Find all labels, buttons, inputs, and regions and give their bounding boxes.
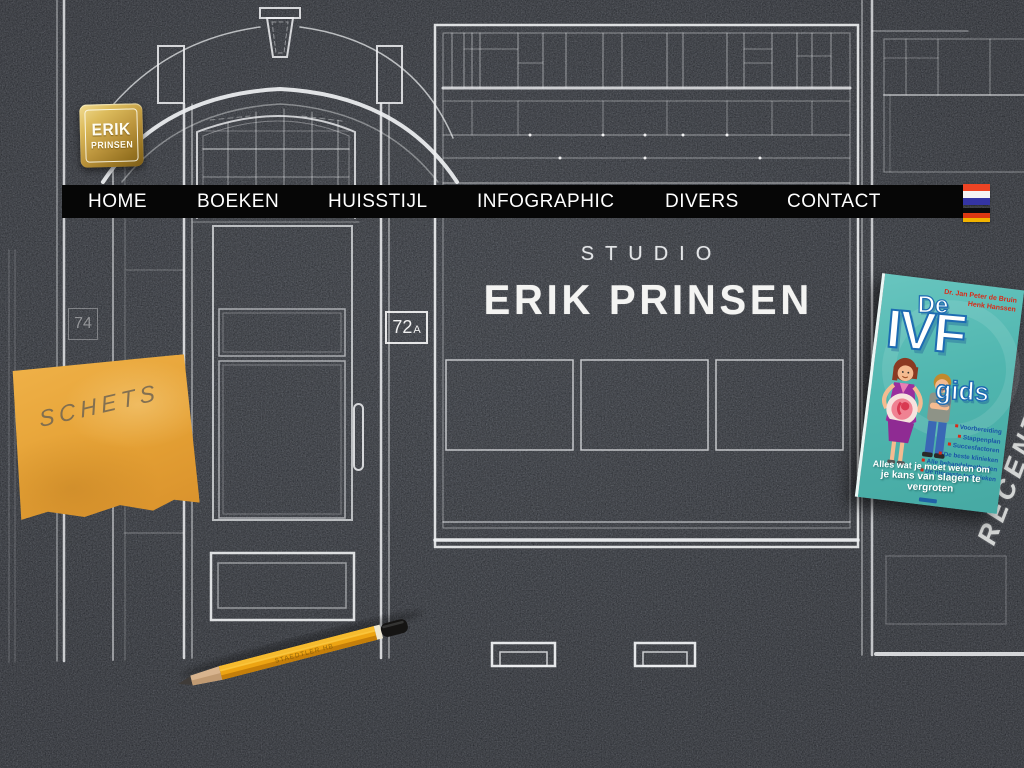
house-number-72a-suffix: A: [413, 324, 420, 336]
pencil: STAEDTLER HB: [148, 598, 448, 708]
hero-title-block: STUDIO ERIK PRINSEN: [434, 243, 858, 324]
language-switcher: [963, 184, 990, 222]
logo-erik-prinsen[interactable]: ERIK PRINSEN: [79, 103, 144, 168]
studio-subtitle: STUDIO: [434, 243, 858, 266]
house-number-72a-main: 72: [392, 317, 412, 338]
house-number-74: 74: [68, 308, 98, 340]
nav-item-contact[interactable]: CONTACT: [787, 185, 881, 218]
nav-item-huisstijl[interactable]: HUISSTIJL: [328, 185, 428, 218]
page: 74 72 A STUDIO ERIK PRINSEN ERIK PRINSEN…: [0, 0, 1024, 768]
logo-text-erik: ERIK: [92, 120, 132, 138]
book-cover-ivf-gids[interactable]: Dr. Jan Peter de Bruin Henk Hanssen De I…: [855, 273, 1024, 514]
nav-item-divers[interactable]: DIVERS: [665, 185, 739, 218]
book-title-ivf: IVF: [884, 302, 966, 363]
nav-item-boeken[interactable]: BOEKEN: [197, 185, 279, 218]
sticky-note[interactable]: SCHETS: [9, 354, 201, 523]
studio-title: ERIK PRINSEN: [479, 276, 812, 324]
house-number-74-text: 74: [74, 315, 92, 333]
publisher-logo: [919, 497, 937, 503]
book-title-gids: gids: [935, 374, 990, 408]
nav-item-home[interactable]: HOME: [88, 185, 147, 218]
logo-inner-border: ERIK PRINSEN: [84, 108, 138, 162]
logo-text-prinsen: PRINSEN: [91, 140, 133, 151]
nav-item-infographic[interactable]: INFOGRAPHIC: [477, 185, 614, 218]
german-flag-icon[interactable]: [963, 208, 990, 222]
dutch-flag-icon[interactable]: [963, 184, 990, 205]
main-nav: HOME BOEKEN HUISSTIJL INFOGRAPHIC DIVERS…: [62, 185, 963, 218]
book-tagline: Alles wat je moet weten om je kans van s…: [860, 458, 1001, 497]
house-number-72a: 72 A: [385, 311, 428, 344]
sticky-note-label: SCHETS: [38, 378, 161, 433]
